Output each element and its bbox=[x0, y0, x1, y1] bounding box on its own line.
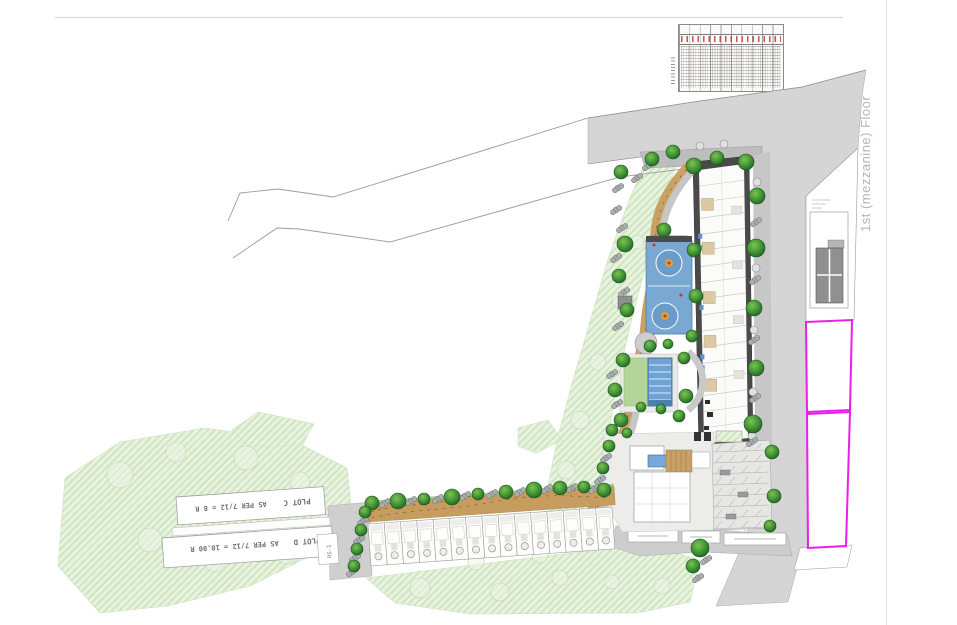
survey-number-box: RS-1 bbox=[317, 533, 339, 564]
plot-boundaries-magenta bbox=[806, 320, 852, 548]
magenta-plot-1 bbox=[806, 320, 852, 412]
plan-viewer-viewport: 1st (mezzanine) Floor bbox=[0, 0, 957, 625]
parking-bays bbox=[712, 440, 772, 530]
feature-pool bbox=[648, 455, 668, 467]
timber-deck bbox=[666, 450, 692, 472]
survey-number-label: RS-1 bbox=[327, 544, 334, 558]
green-roof-box bbox=[716, 431, 742, 442]
clubhouse-cluster bbox=[600, 431, 772, 532]
magenta-plot-2 bbox=[807, 412, 850, 548]
plot-c-name: PLOT C bbox=[283, 497, 311, 508]
site-plan-drawing-canvas[interactable]: PLOT C AS PER 7/12 = 8 R PLOT D AS PER 7… bbox=[0, 0, 957, 625]
plot-d-name: PLOT D bbox=[293, 536, 321, 547]
clubhouse-building bbox=[634, 472, 690, 522]
